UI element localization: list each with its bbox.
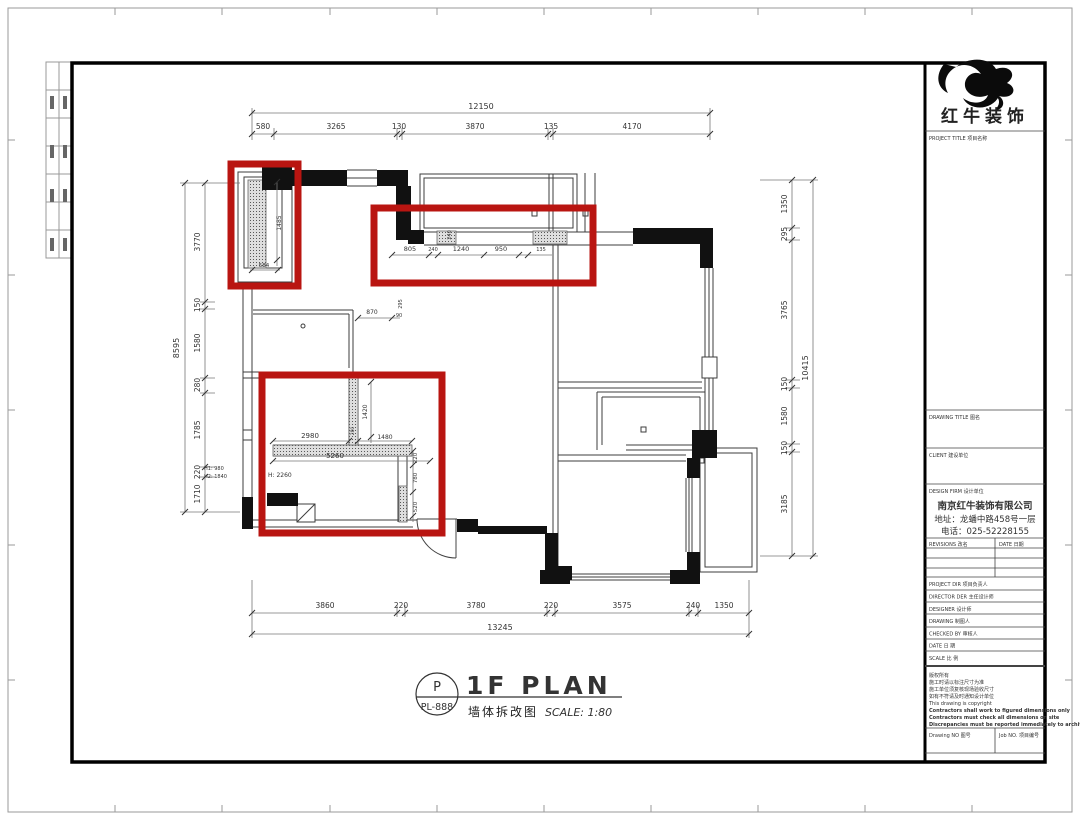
dim-top-5: 4170	[622, 122, 641, 131]
dim-top-3: 3870	[465, 122, 484, 131]
door-swing	[417, 519, 456, 558]
note-line-1: 施工时请以标注尺寸为准	[929, 679, 984, 686]
floor-plan-drawing: 12150 580 3265 130 3870 135 4170 3860 22…	[0, 0, 1080, 820]
dim-bottom-2: 3780	[466, 601, 485, 610]
dim-room-w: 870	[366, 309, 378, 316]
dim-bottom-total: 13245	[487, 623, 512, 632]
note-h1: H1: 980	[204, 466, 224, 472]
fold-strip	[46, 62, 72, 258]
dim-bottom-1: 220	[394, 601, 409, 610]
job-no-label: Job NO. 项目编号	[998, 732, 1039, 739]
dim-demo-b: 1480	[377, 434, 392, 441]
dim-right-5: 150	[780, 441, 789, 456]
plan-title-en: 1F PLAN	[466, 671, 612, 700]
dim-left-0: 3770	[193, 232, 202, 251]
company-name: 南京红牛装饰有限公司	[937, 500, 1032, 512]
dim-side-b: 780	[413, 472, 419, 483]
dim-bottom-6: 1350	[714, 601, 733, 610]
note-line-4: This drawing is copyright	[928, 701, 992, 707]
note-line-6: Contractors must check all dimensions on…	[929, 715, 1060, 721]
dim-demo-a: 2980	[301, 432, 319, 440]
row-director: DIRECTOR DER 主任设计师	[929, 594, 994, 601]
dim-top-4: 135	[544, 122, 559, 131]
row-checked: CHECKED BY 审核人	[929, 631, 978, 638]
dim-bottom-0: 3860	[315, 601, 334, 610]
dim-bottom-4: 3575	[612, 601, 631, 610]
row-scale: SCALE 比 例	[929, 655, 958, 662]
dim-inner-0: 805	[404, 245, 416, 253]
dim-side-a: 220	[413, 452, 419, 463]
dim-top-total: 12150	[468, 102, 493, 111]
dim-inner-4: 135	[536, 247, 546, 253]
brand-name: 红牛装饰	[941, 106, 1029, 127]
dim-demo-c: 5260	[326, 452, 344, 460]
dim-right-6: 3185	[780, 494, 789, 513]
dim-inner-3: 950	[495, 245, 507, 253]
note-line-2: 施工单位须复核现场验收尺寸	[929, 686, 994, 693]
project-title-label: PROJECT TITLE 项目名称	[929, 135, 987, 142]
drawing-sheet: 12150 580 3265 130 3870 135 4170 3860 22…	[0, 0, 1080, 820]
dim-room-off: 90	[396, 313, 402, 319]
row-designer: DESIGNER 设计师	[929, 606, 972, 613]
title-block: 红牛装饰 PROJECT TITLE 项目名称 DRAWING TITLE 图名…	[925, 60, 1080, 753]
dim-top-1: 3265	[326, 122, 345, 131]
date-col-label: DATE 日期	[999, 542, 1024, 548]
plan-code-number: PL-888	[421, 702, 453, 713]
dim-room-rot: 295	[398, 299, 404, 309]
dim-top-2: 130	[392, 122, 407, 131]
dim-side-c: 520	[413, 501, 419, 512]
dim-demo-e: 280	[350, 427, 356, 436]
dim-left-1: 150	[193, 298, 202, 313]
client-label: CLIENT 建设单位	[929, 452, 968, 459]
dim-bottom-5: 240	[686, 601, 701, 610]
plan-title-cn: 墙体拆改图	[468, 704, 538, 719]
plan-title: P PL-888 1F PLAN 墙体拆改图 SCALE: 1:80	[416, 671, 622, 719]
dim-inner-rot: 240	[447, 230, 453, 240]
notes-block: 版权所有 施工时请以标注尺寸为准 施工单位须复核现场验收尺寸 如有不符请及时通知…	[928, 672, 1080, 728]
revisions-label: REVISIONS 改名	[929, 541, 968, 548]
dim-left-total: 8595	[172, 338, 181, 358]
dim-cabinet-h: 1485	[276, 215, 283, 230]
design-firm-label: DESIGN FIRM 设计单位	[929, 488, 984, 495]
dim-top-0: 580	[256, 122, 271, 131]
note-line-0: 版权所有	[929, 672, 949, 679]
dim-demo-d: 1420	[362, 404, 369, 419]
row-project-dir: PROJECT DIR 项目负责人	[929, 581, 988, 588]
note-height: H: 2260	[268, 472, 292, 479]
dim-right-1: 295	[780, 227, 789, 242]
plan-code-letter: P	[433, 680, 441, 695]
plan-scale: SCALE: 1:80	[545, 706, 612, 719]
dim-right-3: 150	[780, 377, 789, 392]
drawing-no-label: Drawing NO 图号	[929, 733, 971, 739]
dim-inner-2: 1240	[453, 245, 470, 253]
dim-right-0: 1350	[780, 194, 789, 213]
dim-right-4: 1580	[780, 406, 789, 425]
dim-cabinet-w: 584	[259, 263, 270, 269]
row-date: DATE 日 期	[929, 644, 955, 650]
dim-left-2: 1580	[193, 333, 202, 352]
brand-logo	[938, 60, 1013, 110]
dim-left-3: 280	[193, 378, 202, 393]
row-drawing: DRAWING 制图人	[929, 618, 970, 625]
note-h2: H2: 1840	[204, 474, 227, 480]
note-line-7: Discrepancies must be reported immediate…	[929, 722, 1080, 728]
drawing-title-label: DRAWING TITLE 图名	[929, 414, 980, 421]
dim-right-total: 10415	[801, 355, 810, 380]
dim-right-2: 3765	[780, 300, 789, 319]
dim-left-5: 220	[193, 465, 202, 480]
note-line-5: Contractors shall work to figured dimens…	[929, 708, 1071, 714]
note-line-3: 如有不符请及时通知设计单位	[929, 693, 994, 700]
dim-bottom-3: 220	[544, 601, 559, 610]
dim-left-4: 1785	[193, 420, 202, 439]
company-address: 地址：龙蟠中路458号一层	[934, 514, 1035, 525]
dim-inner-1: 240	[428, 247, 438, 253]
dim-left-6: 1710	[193, 484, 202, 503]
company-phone: 电话：025-52228155	[941, 526, 1029, 537]
